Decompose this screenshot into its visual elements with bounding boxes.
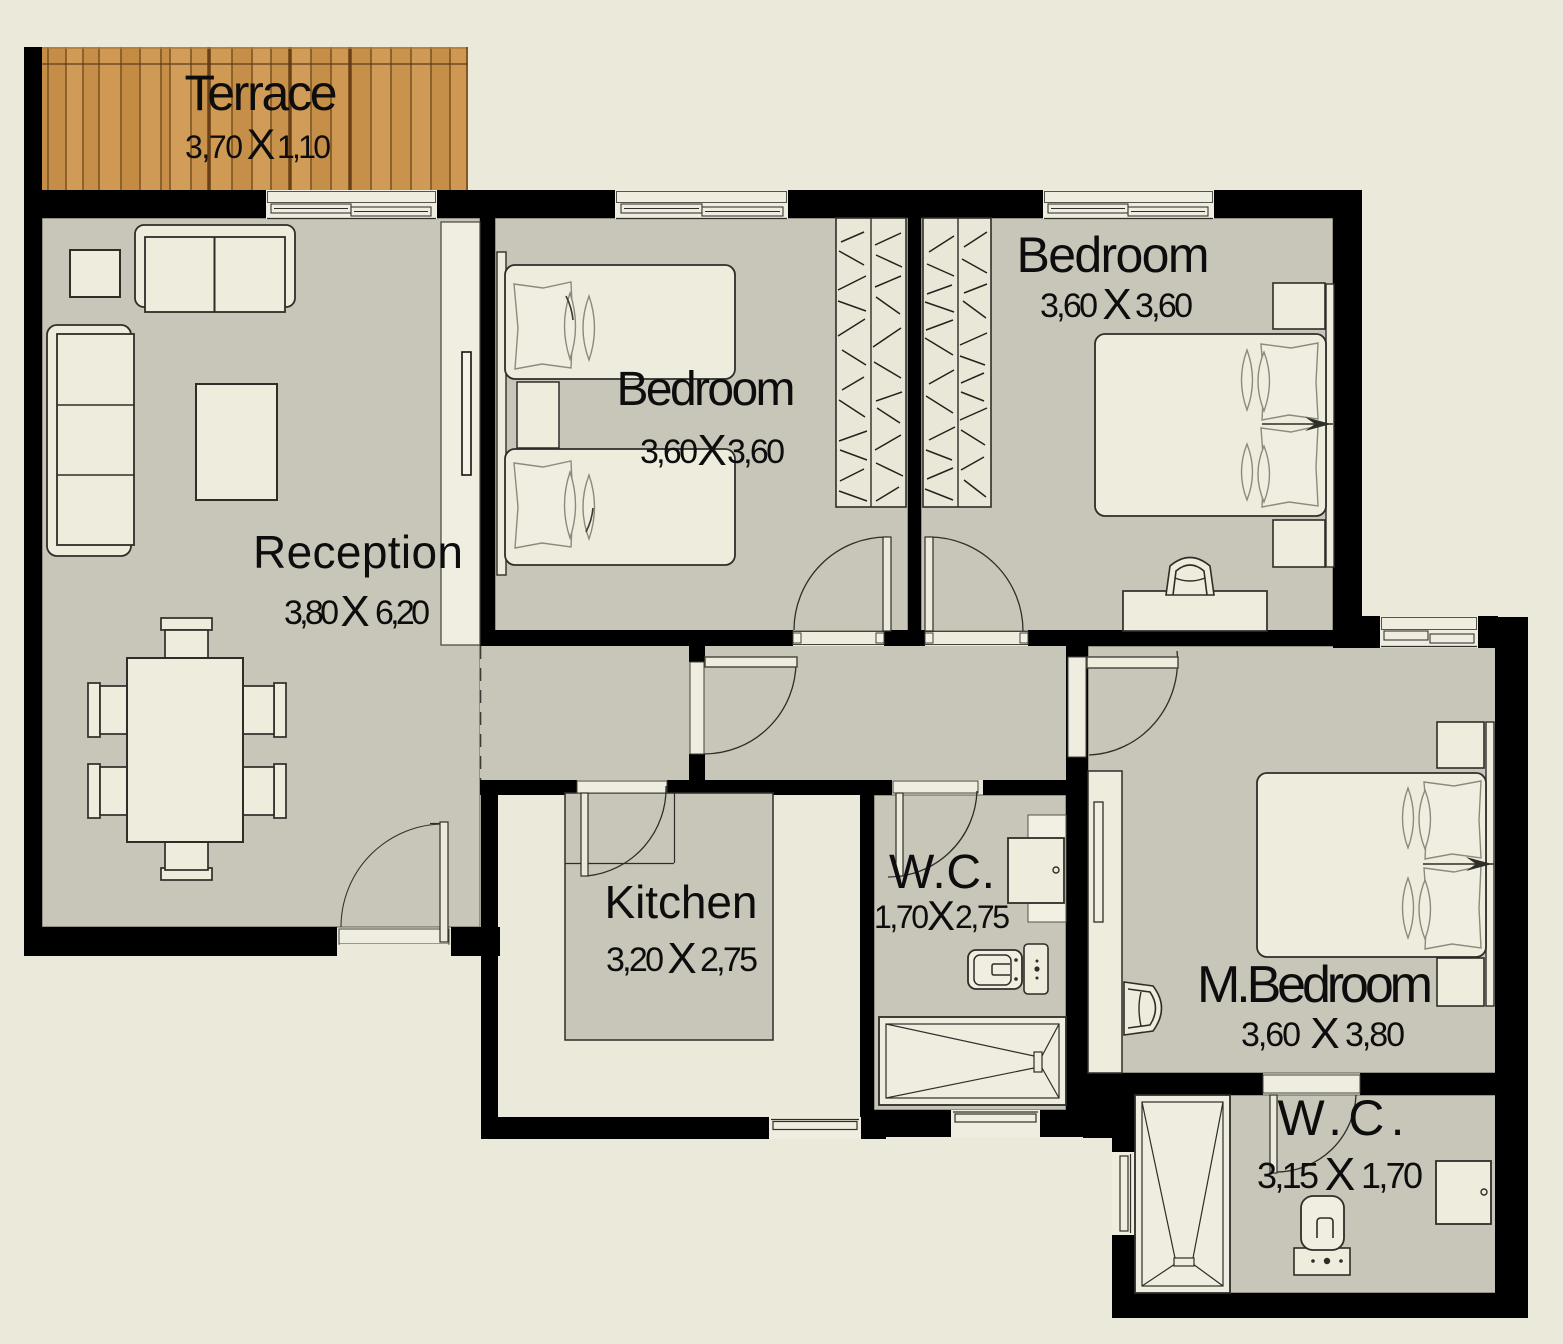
svg-text:Terrace: Terrace (185, 65, 338, 121)
svg-text:X: X (927, 892, 955, 939)
svg-text:3,60: 3,60 (1040, 287, 1098, 325)
svg-text:3,60: 3,60 (727, 433, 785, 471)
svg-text:Bedroom: Bedroom (617, 363, 796, 416)
svg-text:3,70: 3,70 (185, 129, 243, 165)
svg-text:3,60: 3,60 (1135, 287, 1193, 325)
svg-text:Bedroom: Bedroom (1017, 227, 1210, 283)
svg-text:1,70: 1,70 (1361, 1155, 1423, 1196)
svg-text:2,75: 2,75 (955, 899, 1010, 935)
svg-text:X: X (667, 934, 696, 983)
svg-text:3,20: 3,20 (606, 941, 664, 979)
svg-text:X: X (1310, 1009, 1339, 1058)
svg-text:3,15: 3,15 (1257, 1155, 1319, 1196)
svg-text:Kitchen: Kitchen (605, 876, 758, 928)
svg-text:2,75: 2,75 (700, 941, 758, 979)
svg-text:X: X (1102, 280, 1131, 329)
svg-text:3,80: 3,80 (284, 594, 339, 632)
svg-text:3,60: 3,60 (640, 433, 698, 471)
svg-text:1,70: 1,70 (874, 899, 929, 935)
svg-text:M.Bedroom: M.Bedroom (1197, 956, 1433, 1014)
svg-text:1,10: 1,10 (277, 129, 331, 165)
svg-text:X: X (697, 426, 726, 475)
svg-text:6,20: 6,20 (375, 594, 430, 632)
svg-text:X: X (1325, 1148, 1356, 1200)
svg-text:X: X (247, 121, 276, 169)
svg-text:3,80: 3,80 (1345, 1016, 1405, 1054)
svg-text:Reception: Reception (253, 526, 463, 578)
svg-text:3,60: 3,60 (1241, 1016, 1301, 1054)
svg-text:X: X (340, 587, 369, 636)
